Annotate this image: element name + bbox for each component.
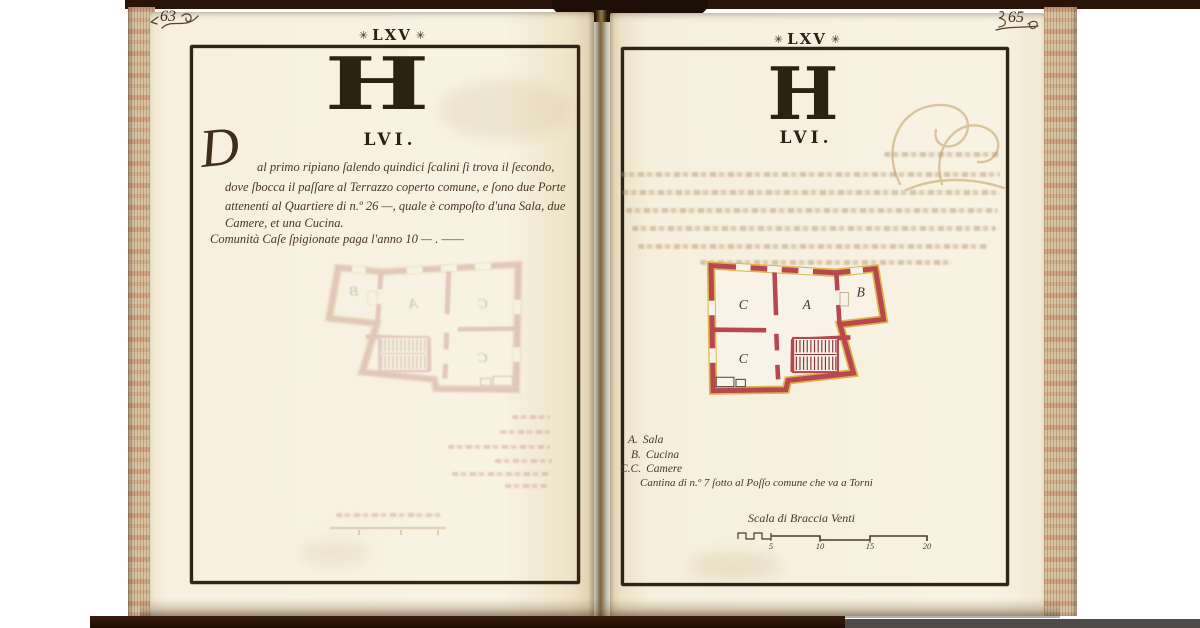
showthrough-scale-tick [437, 530, 439, 535]
showthrough-scale-tick [358, 530, 360, 535]
legend-key: B. [631, 449, 641, 461]
scale-tick-label-5: 5 [769, 541, 773, 551]
showthrough-plan [320, 248, 548, 398]
showthrough-text-line [622, 190, 1000, 195]
showthrough-text-line [505, 484, 547, 488]
showthrough-text-line [500, 430, 550, 434]
section-letter-left: H [185, 48, 569, 120]
folio-flourish-icon [994, 8, 1046, 34]
scale-tick-label-20: 20 [923, 541, 932, 551]
showthrough-flourish [872, 86, 1022, 201]
showthrough-text-line [632, 226, 996, 231]
legend-entry-a: A.Sala [628, 434, 663, 446]
initial-capital: D [197, 118, 241, 176]
showthrough-text-line [884, 152, 1000, 157]
book-bottom-edge [140, 598, 1060, 618]
manuscript-line-4: Camere, et una Cucina. [225, 216, 344, 231]
legend-note: Cantina di n.º 7 ſotto al Poſſo comune c… [640, 477, 873, 489]
floor-plan [684, 249, 892, 399]
legend-entry-cc: C.C.Camere [620, 463, 682, 475]
showthrough-text-line [512, 415, 550, 419]
legend-key: C.C. [620, 463, 641, 475]
fore-edge-right [1044, 7, 1077, 616]
manuscript-scan: C A B C 63 ✳ LXV ✳ H LVI. D al primo rip… [0, 0, 1200, 628]
showthrough-scale-label [336, 513, 442, 517]
legend-key: A. [628, 434, 638, 446]
manuscript-line-1: al primo ripiano ſalendo quindici ſcalin… [257, 160, 554, 175]
fleuron-icon: ✳ [359, 29, 368, 42]
showthrough-text-line [620, 172, 1000, 177]
table-shadow-left [90, 616, 845, 628]
legend-value: Camere [646, 463, 682, 475]
showthrough-text-line [452, 472, 550, 476]
manuscript-line-3: attenenti al Quartiere di n.º 26 —, qual… [225, 199, 565, 214]
fleuron-icon: ✳ [831, 33, 840, 46]
section-numeral-left: LVI. [198, 130, 582, 150]
page-header-right: ✳ LXV ✳ [615, 30, 999, 48]
showthrough-text-line [495, 459, 552, 463]
showthrough-text-line [448, 445, 550, 449]
scale-crenellation [738, 533, 771, 539]
legend-value: Sala [643, 434, 663, 446]
scale-tick-label-15: 15 [866, 541, 875, 551]
legend-value: Cucina [646, 449, 679, 461]
table-shadow-right [845, 619, 1200, 628]
header-text-right: LXV [787, 30, 827, 48]
showthrough-scale-tick [400, 530, 402, 535]
scale-bar: 5 10 15 20 [735, 527, 940, 551]
manuscript-line-2: dove ſbocca il paſſare al Terrazzo coper… [225, 180, 566, 195]
showthrough-text-line [626, 208, 998, 213]
rent-line: Comunità Caſe ſpigionate paga l'anno 10 … [210, 232, 464, 247]
scale-label: Scala di Braccia Venti [748, 511, 855, 526]
showthrough-scale-bar [330, 527, 446, 529]
legend-entry-b: B.Cucina [631, 449, 679, 461]
scale-steps [771, 536, 927, 541]
scale-tick-label-10: 10 [816, 541, 825, 551]
folio-flourish-icon [148, 10, 200, 32]
fleuron-icon: ✳ [416, 29, 425, 42]
fleuron-icon: ✳ [774, 33, 783, 46]
